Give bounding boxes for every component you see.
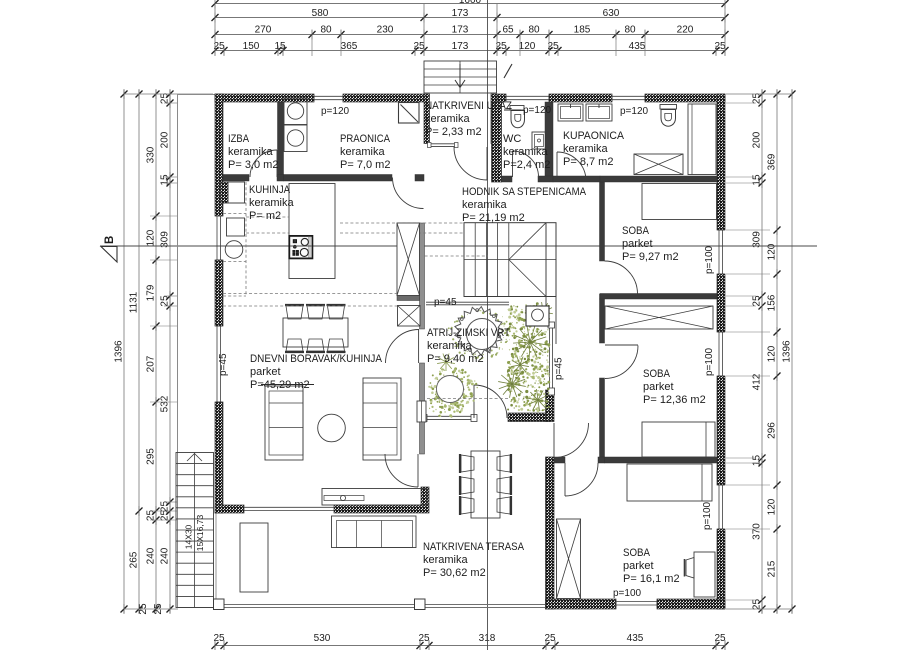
svg-text:80: 80: [320, 25, 332, 36]
svg-text:HODNIK SA STEPENICAMA: HODNIK SA STEPENICAMA: [462, 186, 587, 198]
svg-text:p=100: p=100: [704, 347, 715, 376]
svg-text:NATKRIVENI ULAZ: NATKRIVENI ULAZ: [425, 100, 512, 112]
svg-text:p=100: p=100: [613, 588, 642, 599]
svg-text:15: 15: [274, 41, 286, 52]
svg-text:25: 25: [160, 295, 171, 307]
svg-text:15: 15: [752, 174, 763, 186]
svg-text:1600: 1600: [459, 0, 482, 6]
svg-text:PRAONICA: PRAONICA: [340, 133, 391, 145]
svg-text:keramika: keramika: [503, 146, 549, 158]
svg-text:173: 173: [452, 8, 469, 19]
svg-text:p=120: p=120: [620, 106, 649, 117]
svg-text:parket: parket: [643, 381, 674, 393]
svg-text:keramika: keramika: [427, 340, 473, 352]
svg-text:P=2,4 m2: P=2,4 m2: [503, 159, 550, 171]
svg-text:435: 435: [629, 41, 646, 52]
svg-text:p=100: p=100: [704, 245, 715, 274]
svg-text:25: 25: [752, 295, 763, 307]
svg-text:p=45: p=45: [434, 297, 457, 308]
svg-text:179: 179: [146, 284, 157, 301]
svg-text:p=120: p=120: [321, 106, 350, 117]
svg-text:580: 580: [312, 8, 329, 19]
svg-text:p=100: p=100: [702, 501, 713, 530]
svg-text:parket: parket: [623, 560, 654, 572]
svg-text:SOBA: SOBA: [643, 368, 671, 380]
svg-text:P=45,29 m2: P=45,29 m2: [250, 379, 310, 391]
svg-text:p=120: p=120: [523, 105, 552, 116]
svg-text:P= m2: P= m2: [249, 210, 281, 222]
svg-text:KUPAONICA: KUPAONICA: [563, 130, 625, 142]
svg-text:369: 369: [767, 153, 778, 170]
svg-text:P= 12,36 m2: P= 12,36 m2: [643, 394, 706, 406]
svg-text:530: 530: [314, 633, 331, 644]
svg-text:keramika: keramika: [462, 199, 508, 211]
svg-text:NATKRIVENA TERASA: NATKRIVENA TERASA: [423, 541, 525, 553]
svg-text:295: 295: [146, 448, 157, 465]
svg-text:365: 365: [341, 41, 358, 52]
svg-text:P= 2,33 m2: P= 2,33 m2: [425, 126, 482, 138]
svg-text:IZBA: IZBA: [228, 133, 250, 145]
svg-text:309: 309: [160, 231, 171, 248]
svg-text:SOBA: SOBA: [623, 547, 651, 559]
svg-text:200: 200: [752, 131, 763, 148]
svg-text:330: 330: [146, 146, 157, 163]
svg-text:220: 220: [677, 25, 694, 36]
svg-text:DNEVNI BORAVAK/KUHINJA: DNEVNI BORAVAK/KUHINJA: [250, 353, 383, 365]
svg-text:309: 309: [752, 231, 763, 248]
svg-text:185: 185: [574, 25, 591, 36]
svg-text:KUHINJA: KUHINJA: [249, 184, 291, 196]
svg-text:25: 25: [138, 603, 149, 615]
svg-text:173: 173: [452, 25, 469, 36]
svg-text:1131: 1131: [129, 291, 140, 313]
svg-text:230: 230: [377, 25, 394, 36]
svg-text:120: 120: [146, 229, 157, 246]
svg-text:keramika: keramika: [249, 197, 295, 209]
svg-text:435: 435: [627, 633, 644, 644]
svg-text:265: 265: [129, 551, 140, 568]
svg-text:173: 173: [452, 41, 469, 52]
svg-text:keramika: keramika: [563, 143, 609, 155]
svg-text:25: 25: [153, 603, 164, 615]
svg-text:P= 8,7 m2: P= 8,7 m2: [563, 156, 613, 168]
svg-text:156: 156: [767, 294, 778, 311]
svg-text:keramika: keramika: [423, 554, 469, 566]
svg-text:P= 30,62 m2: P= 30,62 m2: [423, 567, 486, 579]
svg-text:240: 240: [146, 547, 157, 564]
svg-text:P= 7,0 m2: P= 7,0 m2: [340, 159, 390, 171]
svg-text:15X16,73: 15X16,73: [195, 515, 205, 552]
svg-text:80: 80: [624, 25, 636, 36]
svg-text:P= 21,19 m2: P= 21,19 m2: [462, 212, 525, 224]
svg-text:65: 65: [502, 25, 514, 36]
svg-text:P= 3,0 m2: P= 3,0 m2: [228, 159, 278, 171]
svg-text:1396: 1396: [782, 340, 793, 363]
svg-text:P= 16,1 m2: P= 16,1 m2: [623, 573, 680, 585]
svg-text:keramika: keramika: [228, 146, 274, 158]
svg-text:240: 240: [160, 547, 171, 564]
svg-text:207: 207: [146, 355, 157, 372]
svg-text:ATRIJ-ZIMSKI VRT: ATRIJ-ZIMSKI VRT: [427, 327, 510, 339]
svg-text:215: 215: [767, 560, 778, 577]
svg-text:keramika: keramika: [425, 113, 471, 125]
svg-text:P= 9,40 m2: P= 9,40 m2: [427, 353, 484, 365]
svg-text:p=45: p=45: [218, 353, 229, 376]
svg-text:532: 532: [160, 395, 171, 412]
svg-text:630: 630: [603, 8, 620, 19]
svg-text:keramika: keramika: [340, 146, 386, 158]
svg-text:15: 15: [160, 174, 171, 186]
svg-text:parket: parket: [250, 366, 281, 378]
svg-text:120: 120: [519, 41, 536, 52]
svg-text:p=45: p=45: [554, 357, 565, 380]
svg-text:P= 9,27 m2: P= 9,27 m2: [622, 251, 679, 263]
svg-text:200: 200: [160, 131, 171, 148]
svg-text:296: 296: [767, 422, 778, 439]
svg-text:370: 370: [752, 523, 763, 540]
svg-text:270: 270: [255, 25, 272, 36]
svg-text:14X30: 14X30: [184, 524, 194, 549]
svg-text:80: 80: [528, 25, 540, 36]
svg-text:WC: WC: [503, 133, 521, 145]
svg-text:120: 120: [767, 345, 778, 362]
svg-text:150: 150: [243, 41, 260, 52]
svg-text:120: 120: [767, 498, 778, 515]
svg-text:SOBA: SOBA: [622, 225, 650, 237]
svg-text:parket: parket: [622, 238, 653, 250]
svg-text:1396: 1396: [114, 340, 125, 363]
svg-text:15: 15: [752, 455, 763, 467]
svg-text:B: B: [104, 236, 116, 244]
